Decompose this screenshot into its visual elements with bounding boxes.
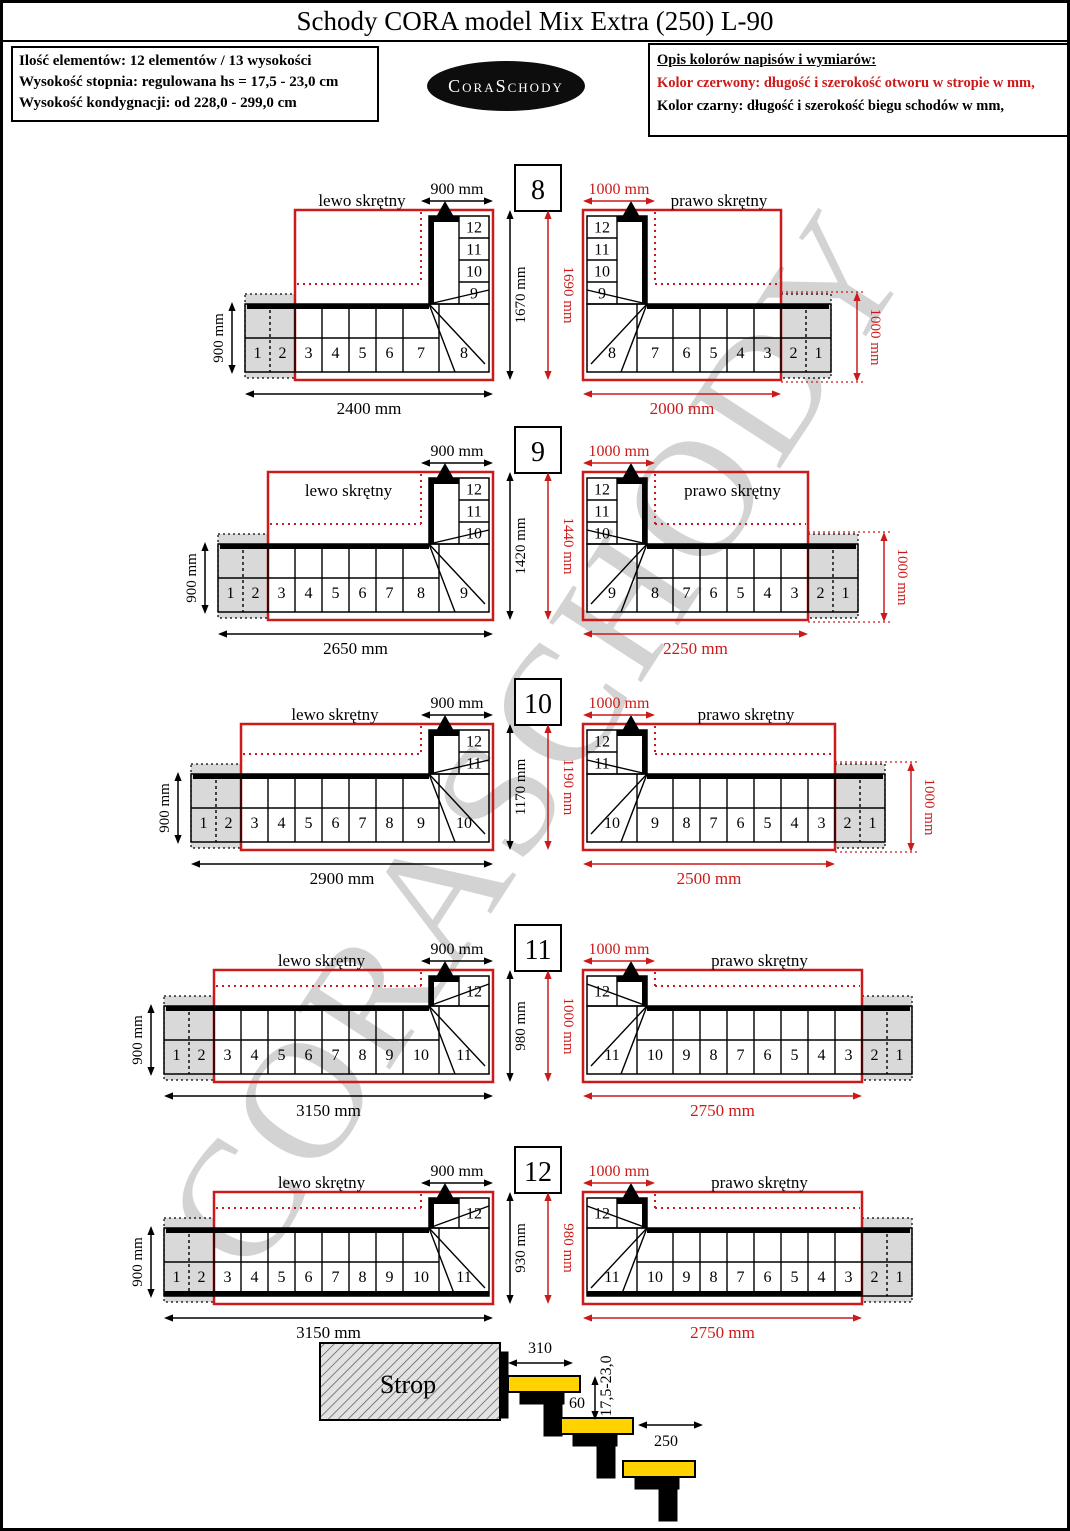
step-number: 6 — [305, 1269, 313, 1286]
dim-bottom-label: 2900 mm — [310, 869, 375, 888]
step-number: 9 — [651, 815, 659, 832]
step-number: 3 — [764, 345, 772, 362]
step-number: 10 — [647, 1047, 663, 1064]
dim-top-label: 900 mm — [431, 443, 484, 460]
dim-bottom-label: 2000 mm — [650, 399, 715, 418]
step-number: 7 — [332, 1269, 340, 1286]
step-number: 12 — [594, 220, 610, 237]
step-number: 8 — [683, 815, 691, 832]
step-number: 3 — [818, 815, 826, 832]
step-number: 7 — [417, 345, 425, 362]
info-line-step: Wysokość stopnia: regulowana hs = 17,5 -… — [19, 72, 371, 93]
step-number: 4 — [818, 1269, 826, 1286]
dim-250: 250 — [654, 1433, 678, 1450]
dim-top-label: 900 mm — [431, 695, 484, 712]
step-number: 12 — [594, 734, 610, 751]
stair-diagram-12: 123456789101112900 mm900 mm3150 mmlewo s… — [3, 1143, 1070, 1338]
direction-label: lewo skrętny — [278, 951, 366, 970]
dim-side-label: 1000 mm — [867, 308, 883, 365]
stair-plan-row-9: 123456789121110900 mm900 mm2650 mmlewo s… — [3, 423, 1070, 662]
variant-number: 9 — [531, 437, 545, 468]
step-number: 5 — [737, 585, 745, 602]
dim-middle-red: 980 mm — [560, 1223, 576, 1273]
dim-top-label: 1000 mm — [589, 1163, 650, 1180]
direction-label: prawo skrętny — [711, 1173, 808, 1192]
step-number: 7 — [332, 1047, 340, 1064]
step-number: 7 — [683, 585, 691, 602]
dim-top-label: 1000 mm — [589, 443, 650, 460]
step-number: 9 — [683, 1047, 691, 1064]
direction-label: lewo skrętny — [305, 481, 393, 500]
page-title: Schody CORA model Mix Extra (250) L-90 — [3, 3, 1067, 42]
step-number: 7 — [651, 345, 659, 362]
step-number: 12 — [594, 482, 610, 499]
step-number: 10 — [413, 1047, 429, 1064]
color-legend: Opis kolorów napisów i wymiarów: Kolor c… — [648, 43, 1070, 137]
dim-middle-red: 1440 mm — [560, 517, 576, 574]
dim-side-label: 900 mm — [130, 1237, 146, 1287]
stair-plan-row-12: 123456789101112900 mm900 mm3150 mmlewo s… — [3, 1143, 1070, 1338]
dim-side-label: 900 mm — [130, 1015, 146, 1065]
step-number: 2 — [198, 1047, 206, 1064]
stair-diagram-11: 123456789101112900 mm900 mm3150 mmlewo s… — [3, 921, 1070, 1116]
step-number: 2 — [252, 585, 260, 602]
legend-red-line: Kolor czerwony: długość i szerokość otwo… — [657, 72, 1070, 95]
step-number: 6 — [305, 1047, 313, 1064]
dim-60: 60 — [569, 1395, 585, 1412]
direction-label: prawo skrętny — [698, 705, 795, 724]
dim-side-label: 1000 mm — [921, 778, 937, 835]
step-number: 6 — [332, 815, 340, 832]
step-number: 1 — [173, 1269, 181, 1286]
step-number: 4 — [737, 345, 745, 362]
step-number: 1 — [200, 815, 208, 832]
step-number: 10 — [466, 264, 482, 281]
dim-middle-black: 1170 mm — [513, 758, 529, 815]
step-number: 8 — [710, 1047, 718, 1064]
step-number: 12 — [466, 482, 482, 499]
step-number: 9 — [608, 585, 616, 602]
dim-bottom-label: 3150 mm — [296, 1101, 361, 1116]
cora-schody-logo: CoraSchody — [427, 61, 585, 111]
step-number: 12 — [466, 734, 482, 751]
dim-bottom-label: 2500 mm — [677, 869, 742, 888]
step-number: 2 — [871, 1047, 879, 1064]
strop-label: Strop — [380, 1370, 436, 1399]
step-number: 2 — [871, 1269, 879, 1286]
variant-number: 11 — [525, 935, 552, 966]
step-number: 1 — [842, 585, 850, 602]
step-number: 5 — [764, 815, 772, 832]
stair-diagram-8: 123456781211109900 mm900 mm2400 mmlewo s… — [3, 161, 1070, 422]
direction-label: lewo skrętny — [291, 705, 379, 724]
info-box: Ilość elementów: 12 elementów / 13 wysok… — [11, 46, 379, 122]
dim-middle-black: 1670 mm — [513, 266, 529, 323]
step-number: 7 — [737, 1269, 745, 1286]
step-number: 2 — [817, 585, 825, 602]
step-number: 5 — [710, 345, 718, 362]
drawing-sheet: CORASCHODY Schody CORA model Mix Extra (… — [0, 0, 1070, 1531]
dim-top-label: 1000 mm — [589, 181, 650, 198]
step-number: 6 — [764, 1047, 772, 1064]
step-number: 10 — [594, 264, 610, 281]
dim-bottom-label: 2750 mm — [690, 1101, 755, 1116]
step-number: 9 — [683, 1269, 691, 1286]
step-number: 6 — [359, 585, 367, 602]
step-number: 3 — [845, 1269, 853, 1286]
step-number: 3 — [224, 1047, 232, 1064]
step-number: 9 — [460, 585, 468, 602]
step-number: 8 — [710, 1269, 718, 1286]
dim-middle-red: 1690 mm — [560, 266, 576, 323]
legend-title: Opis kolorów napisów i wymiarów: — [657, 49, 1070, 72]
variant-number: 10 — [524, 689, 552, 720]
step-number: 10 — [413, 1269, 429, 1286]
step-number: 5 — [305, 815, 313, 832]
step-number: 9 — [386, 1269, 394, 1286]
step-number: 4 — [251, 1047, 259, 1064]
dim-310: 310 — [528, 1340, 552, 1357]
step-number: 8 — [386, 815, 394, 832]
step-number: 4 — [818, 1047, 826, 1064]
step-number: 6 — [386, 345, 394, 362]
step-number: 8 — [460, 345, 468, 362]
direction-label: lewo skrętny — [278, 1173, 366, 1192]
step-number: 11 — [594, 242, 609, 259]
step-number: 5 — [359, 345, 367, 362]
dim-top-label: 900 mm — [431, 941, 484, 958]
step-number: 6 — [683, 345, 691, 362]
legend-black-line: Kolor czarny: długość i szerokość biegu … — [657, 95, 1070, 118]
step-number: 2 — [198, 1269, 206, 1286]
step-number: 4 — [332, 345, 340, 362]
step-number: 9 — [417, 815, 425, 832]
step-number: 1 — [227, 585, 235, 602]
step-number: 5 — [791, 1047, 799, 1064]
step-number: 6 — [737, 815, 745, 832]
stair-cross-section: Strop3106017,5-23,0250 — [3, 1338, 1070, 1528]
step-number: 1 — [254, 345, 262, 362]
step-number: 3 — [791, 585, 799, 602]
step-number: 3 — [305, 345, 313, 362]
info-line-storey: Wysokość kondygnacji: od 228,0 - 299,0 c… — [19, 93, 371, 114]
direction-label: prawo skrętny — [711, 951, 808, 970]
step-number: 6 — [764, 1269, 772, 1286]
step-number: 5 — [332, 585, 340, 602]
dim-top-label: 1000 mm — [589, 941, 650, 958]
stair-plan-row-11: 123456789101112900 mm900 mm3150 mmlewo s… — [3, 921, 1070, 1116]
dim-bottom-label: 3150 mm — [296, 1323, 361, 1338]
step-number: 7 — [737, 1047, 745, 1064]
dim-bottom-label: 2250 mm — [663, 639, 728, 658]
step-number: 1 — [896, 1269, 904, 1286]
stair-diagram-9: 123456789121110900 mm900 mm2650 mmlewo s… — [3, 423, 1070, 662]
dim-bottom-label: 2650 mm — [323, 639, 388, 658]
step-number: 4 — [251, 1269, 259, 1286]
step-number: 3 — [845, 1047, 853, 1064]
step-number: 11 — [594, 504, 609, 521]
dim-top-label: 900 mm — [431, 181, 484, 198]
step-number: 8 — [417, 585, 425, 602]
info-line-elements: Ilość elementów: 12 elementów / 13 wysok… — [19, 51, 371, 72]
step-number: 11 — [466, 504, 481, 521]
dim-top-label: 1000 mm — [589, 695, 650, 712]
step-number: 3 — [224, 1269, 232, 1286]
dim-bottom-label: 2400 mm — [337, 399, 402, 418]
step-number: 4 — [278, 815, 286, 832]
dim-side-label: 900 mm — [157, 783, 173, 833]
variant-number: 12 — [524, 1157, 552, 1188]
step-number: 7 — [359, 815, 367, 832]
step-number: 8 — [359, 1047, 367, 1064]
step-number: 12 — [466, 220, 482, 237]
stair-diagram-10: 123456789101211900 mm900 mm2900 mmlewo s… — [3, 675, 1070, 892]
step-number: 10 — [647, 1269, 663, 1286]
step-number: 11 — [466, 242, 481, 259]
step-number: 8 — [608, 345, 616, 362]
step-number: 3 — [278, 585, 286, 602]
dim-middle-red: 1190 mm — [560, 759, 576, 816]
variant-number: 8 — [531, 175, 545, 206]
cross-section-diagram: Strop3106017,5-23,0250 — [3, 1338, 1070, 1528]
step-number: 3 — [251, 815, 259, 832]
step-number: 7 — [386, 585, 394, 602]
dim-riser-range: 17,5-23,0 — [598, 1355, 615, 1416]
dim-middle-black: 930 mm — [513, 1223, 529, 1273]
step-number: 5 — [791, 1269, 799, 1286]
dim-middle-black: 980 mm — [513, 1001, 529, 1051]
dim-middle-red: 1000 mm — [560, 997, 576, 1054]
step-number: 5 — [278, 1047, 286, 1064]
step-number: 9 — [386, 1047, 394, 1064]
step-number: 2 — [225, 815, 233, 832]
step-number: 7 — [710, 815, 718, 832]
step-number: 1 — [815, 345, 823, 362]
step-number: 4 — [764, 585, 772, 602]
stair-plan-row-10: 123456789101211900 mm900 mm2900 mmlewo s… — [3, 675, 1070, 892]
step-number: 2 — [279, 345, 287, 362]
step-number: 2 — [790, 345, 798, 362]
dim-middle-black: 1420 mm — [513, 517, 529, 574]
stair-plan-row-8: 123456781211109900 mm900 mm2400 mmlewo s… — [3, 161, 1070, 422]
step-number: 1 — [869, 815, 877, 832]
step-number: 2 — [844, 815, 852, 832]
dim-top-label: 900 mm — [431, 1163, 484, 1180]
direction-label: lewo skrętny — [318, 191, 406, 210]
dim-side-label: 900 mm — [184, 553, 200, 603]
step-number: 8 — [359, 1269, 367, 1286]
direction-label: prawo skrętny — [684, 481, 781, 500]
step-number: 5 — [278, 1269, 286, 1286]
direction-label: prawo skrętny — [671, 191, 768, 210]
step-number: 4 — [305, 585, 313, 602]
step-number: 1 — [173, 1047, 181, 1064]
step-number: 4 — [791, 815, 799, 832]
step-number: 6 — [710, 585, 718, 602]
dim-side-label: 900 mm — [211, 313, 227, 363]
step-number: 8 — [651, 585, 659, 602]
dim-side-label: 1000 mm — [894, 548, 910, 605]
step-number: 1 — [896, 1047, 904, 1064]
dim-bottom-label: 2750 mm — [690, 1323, 755, 1338]
